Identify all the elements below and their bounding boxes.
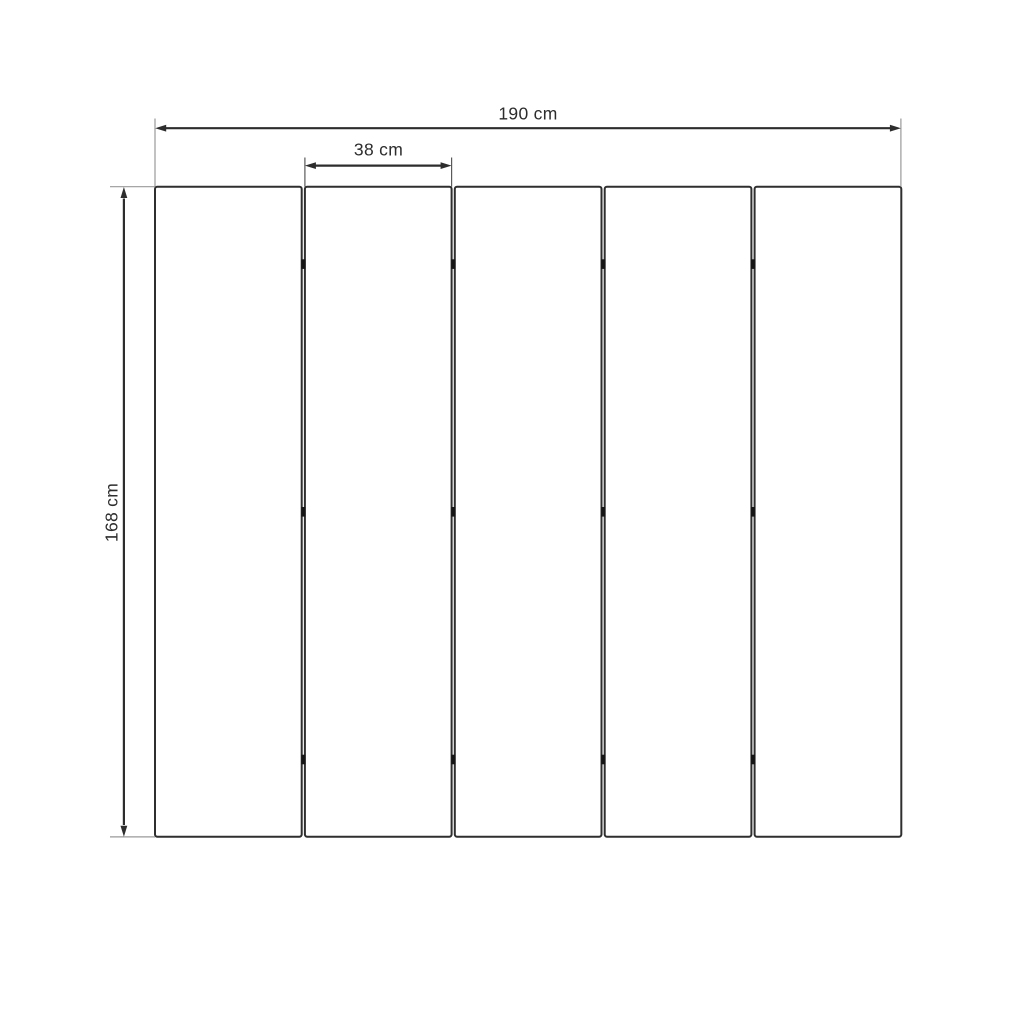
svg-text:190 cm: 190 cm xyxy=(498,104,557,124)
svg-text:168 cm: 168 cm xyxy=(101,483,121,542)
svg-text:38 cm: 38 cm xyxy=(354,140,403,160)
